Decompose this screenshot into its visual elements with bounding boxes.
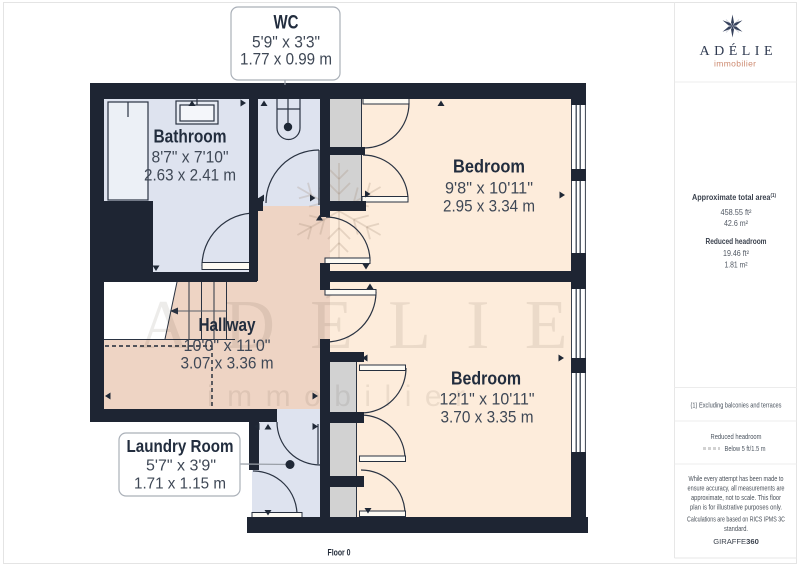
svg-text:Floor 0: Floor 0 [328, 548, 351, 558]
svg-text:2.95 x 3.34 m: 2.95 x 3.34 m [443, 197, 535, 216]
svg-text:3.70 x 3.35 m: 3.70 x 3.35 m [441, 408, 534, 427]
svg-text:2.63 x 2.41 m: 2.63 x 2.41 m [144, 167, 236, 185]
svg-text:(1) Excluding balconies and te: (1) Excluding balconies and terraces [691, 401, 782, 410]
svg-text:Approximate total area(1): Approximate total area(1) [692, 193, 776, 202]
svg-text:Below 5 ft/1.5 m: Below 5 ft/1.5 m [725, 444, 766, 453]
svg-text:Bedroom: Bedroom [451, 368, 521, 389]
svg-text:immobilier: immobilier [207, 380, 465, 413]
svg-text:1.77 x 0.99 m: 1.77 x 0.99 m [240, 51, 332, 69]
svg-text:8'7" x 7'10": 8'7" x 7'10" [152, 149, 229, 167]
svg-text:GIRAFFE360: GIRAFFE360 [713, 537, 759, 546]
svg-text:Laundry Room: Laundry Room [127, 436, 234, 456]
svg-text:9'8" x 10'11": 9'8" x 10'11" [445, 179, 533, 198]
svg-text:Hallway: Hallway [199, 315, 256, 335]
svg-text:1.81 m²: 1.81 m² [725, 261, 748, 270]
svg-text:10'0" x 11'0": 10'0" x 11'0" [184, 337, 271, 355]
svg-text:approximate, not to scale. Thi: approximate, not to scale. This floor [691, 493, 781, 502]
svg-text:Reduced headroom: Reduced headroom [711, 432, 762, 441]
svg-text:Reduced headroom: Reduced headroom [706, 237, 767, 246]
svg-text:Bathroom: Bathroom [154, 127, 227, 147]
svg-text:1.71 x 1.15 m: 1.71 x 1.15 m [134, 476, 226, 493]
svg-text:5'9" x 3'3": 5'9" x 3'3" [252, 34, 320, 52]
svg-text:standard.: standard. [724, 524, 748, 533]
svg-text:42.6 m²: 42.6 m² [724, 219, 748, 228]
svg-text:While every attempt has been m: While every attempt has been made to [689, 474, 784, 483]
svg-text:WC: WC [274, 13, 299, 34]
svg-text:Calculations are based on RICS: Calculations are based on RICS IPMS 3C [687, 515, 785, 524]
svg-text:3.07 x 3.36 m: 3.07 x 3.36 m [181, 355, 274, 373]
svg-text:19.46 ft²: 19.46 ft² [723, 249, 749, 258]
svg-text:5'7" x 3'9": 5'7" x 3'9" [146, 458, 216, 475]
svg-text:ensure accuracy, all measureme: ensure accuracy, all measurements are [688, 484, 785, 493]
svg-text:458.55 ft²: 458.55 ft² [721, 208, 752, 217]
svg-text:12'1" x 10'11": 12'1" x 10'11" [440, 390, 535, 409]
svg-text:plan is for illustrative purpo: plan is for illustrative purposes only. [690, 503, 782, 512]
svg-text:Bedroom: Bedroom [453, 156, 525, 177]
svg-text:immobilier: immobilier [714, 59, 756, 69]
